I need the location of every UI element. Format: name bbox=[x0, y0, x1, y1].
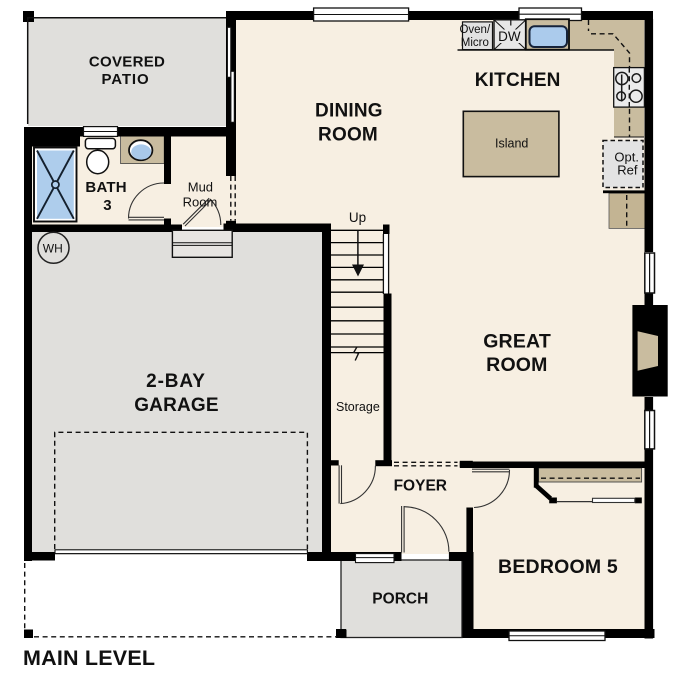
svg-text:WH: WH bbox=[43, 242, 63, 256]
svg-text:Island: Island bbox=[495, 136, 528, 150]
svg-text:BEDROOM 5: BEDROOM 5 bbox=[498, 556, 618, 578]
svg-text:Ref: Ref bbox=[617, 163, 638, 178]
svg-text:Storage: Storage bbox=[336, 400, 380, 414]
svg-text:GARAGE: GARAGE bbox=[134, 395, 219, 416]
svg-text:KITCHEN: KITCHEN bbox=[475, 70, 561, 91]
svg-text:2-BAY: 2-BAY bbox=[146, 371, 206, 392]
svg-text:GREAT: GREAT bbox=[483, 330, 551, 352]
svg-text:COVERED: COVERED bbox=[89, 53, 165, 70]
svg-text:Micro: Micro bbox=[461, 37, 489, 49]
svg-text:DINING: DINING bbox=[315, 100, 383, 121]
svg-text:ROOM: ROOM bbox=[486, 354, 547, 376]
svg-text:PORCH: PORCH bbox=[372, 591, 428, 608]
svg-text:Up: Up bbox=[349, 210, 366, 225]
svg-text:ROOM: ROOM bbox=[318, 124, 378, 145]
svg-text:Oven/: Oven/ bbox=[459, 24, 490, 36]
svg-text:FOYER: FOYER bbox=[394, 477, 447, 494]
svg-text:BATH: BATH bbox=[85, 179, 126, 196]
svg-text:MAIN LEVEL: MAIN LEVEL bbox=[23, 646, 155, 670]
svg-text:Mud: Mud bbox=[188, 180, 213, 195]
svg-text:PATIO: PATIO bbox=[101, 71, 149, 88]
svg-text:Room: Room bbox=[183, 195, 218, 210]
svg-text:DW: DW bbox=[498, 29, 521, 44]
svg-text:3: 3 bbox=[103, 197, 111, 214]
